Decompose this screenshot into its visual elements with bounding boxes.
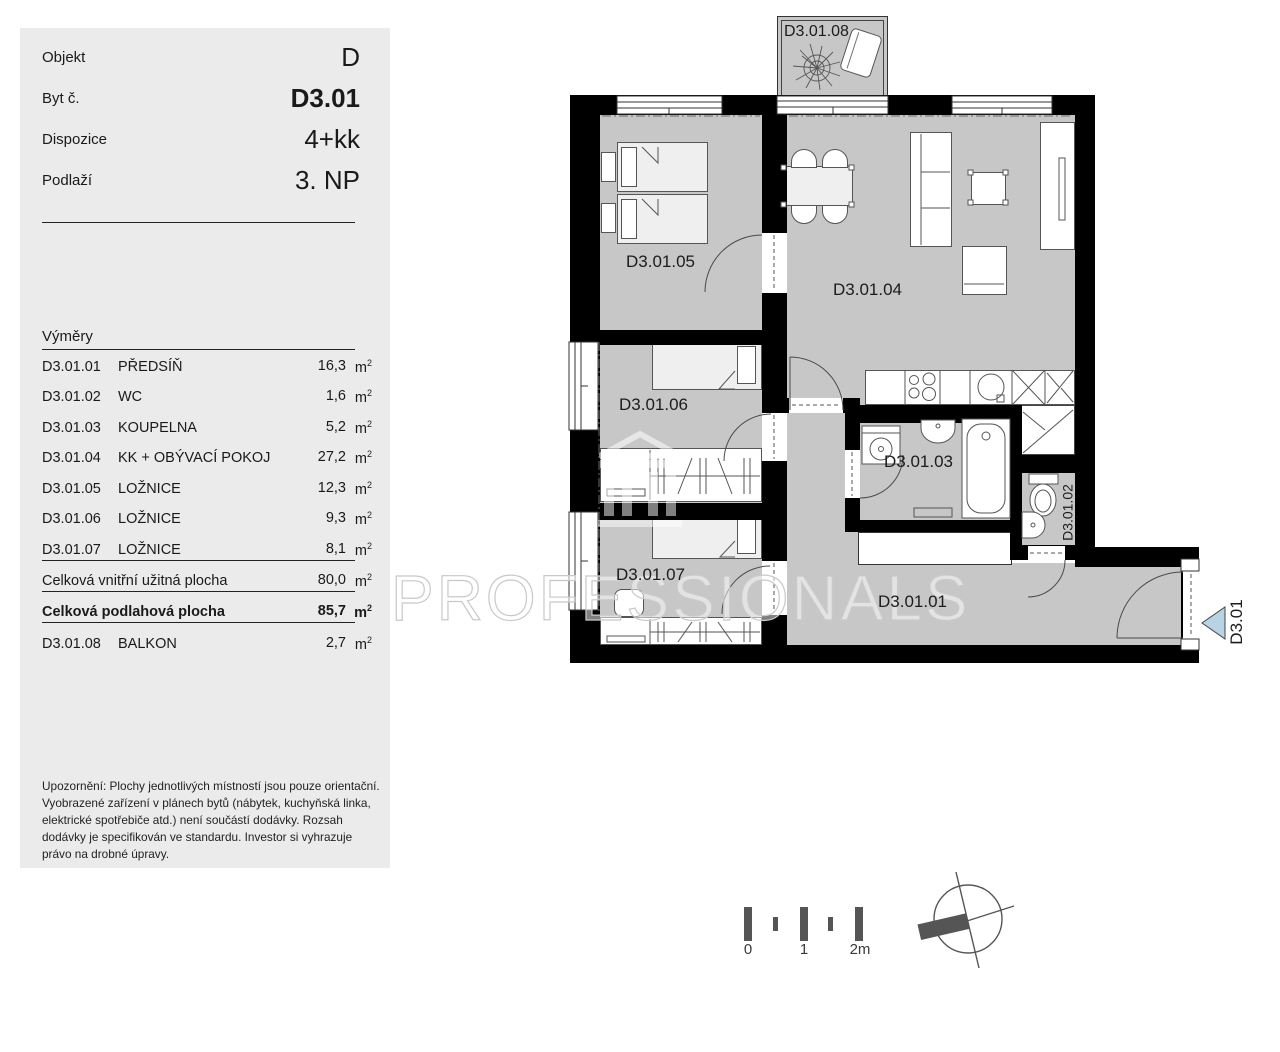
stove-burner	[910, 376, 919, 385]
room-label-wc: D3.01.02	[1060, 477, 1075, 549]
wc-sink	[1022, 512, 1045, 538]
room-label-bedroom3: D3.01.07	[616, 565, 685, 585]
toilet-tank	[1029, 474, 1058, 484]
floorplan-sheet: Objekt D Byt č. D3.01 Dispozice 4+kk Pod…	[0, 0, 1280, 1052]
room-label-hall: D3.01.01	[878, 592, 947, 612]
room-label-living: D3.01.04	[833, 280, 902, 300]
dash-dot-lines	[599, 112, 1073, 612]
toilet-bowl	[1030, 484, 1056, 516]
shaft-diagonal	[1023, 410, 1073, 453]
scale-bar	[744, 907, 863, 941]
room-label-bedroom1: D3.01.05	[626, 252, 695, 272]
entrance-label: D3.01	[1227, 587, 1245, 657]
plan-annotations	[0, 0, 1280, 1052]
entrance-marker	[1202, 607, 1225, 639]
bathroom-fixtures	[862, 410, 1073, 538]
bath-mat	[914, 508, 952, 517]
north-compass	[917, 872, 1014, 968]
room-label-bathroom: D3.01.03	[884, 452, 953, 472]
windows	[569, 96, 1052, 610]
plant-icon	[793, 44, 840, 90]
bathtub	[962, 419, 1010, 518]
watermark-logo	[598, 434, 682, 527]
bathroom-sink	[921, 420, 955, 443]
room-label-bedroom2: D3.01.06	[619, 395, 688, 415]
kitchen-symbols	[905, 370, 1073, 405]
kitchen-sink	[978, 374, 1004, 400]
fridge-symbol	[1047, 371, 1073, 403]
